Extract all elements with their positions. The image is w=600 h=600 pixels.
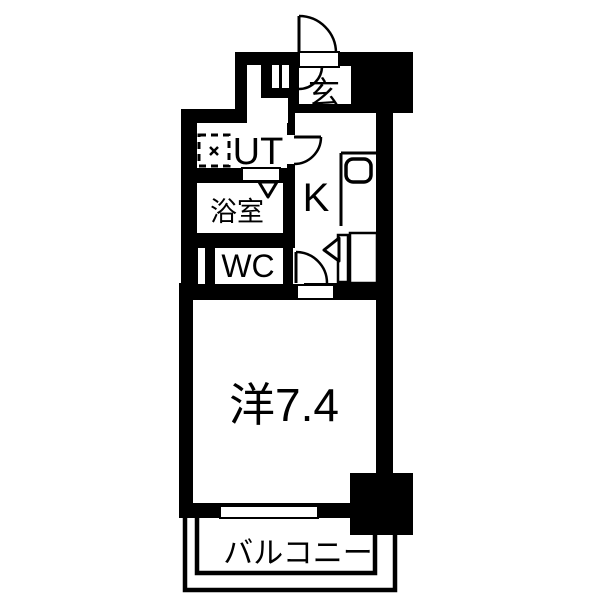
wall-left-upper bbox=[181, 109, 197, 302]
wall-left-lower bbox=[179, 283, 193, 518]
wall-mainroom-top bbox=[179, 283, 392, 300]
toilet-label: WC bbox=[221, 248, 274, 284]
main-room-doorway bbox=[297, 285, 334, 299]
shoe-storage-slot-1 bbox=[247, 65, 261, 100]
refrigerator-space bbox=[350, 233, 377, 283]
wall-right bbox=[376, 52, 393, 473]
entrance-doorway bbox=[299, 52, 339, 67]
kitchen-label: K bbox=[303, 176, 330, 220]
shoe-storage-slot-3 bbox=[282, 65, 289, 88]
balcony-window bbox=[220, 506, 318, 518]
entrance-label: 玄 bbox=[308, 75, 340, 111]
balcony-label: バルコニー bbox=[223, 537, 372, 570]
utility-door-gap bbox=[287, 135, 295, 164]
utility-nook bbox=[247, 98, 288, 123]
main-room-label: 洋7.4 bbox=[229, 379, 339, 431]
pillar bbox=[350, 473, 413, 535]
kitchen-sink-icon bbox=[346, 159, 371, 182]
shoe-storage-slot-2 bbox=[272, 65, 279, 88]
pipe-space-slot bbox=[198, 248, 205, 284]
floorplan-canvas: 玄 UT 浴室 WC K 洋7.4 バルコニー bbox=[0, 0, 600, 600]
wall-bath-wc bbox=[197, 233, 283, 249]
bathroom-label: 浴室 bbox=[210, 197, 264, 227]
floorplan-drawing: 玄 UT 浴室 WC K 洋7.4 バルコニー bbox=[0, 0, 600, 600]
utility-label: UT bbox=[233, 131, 284, 173]
